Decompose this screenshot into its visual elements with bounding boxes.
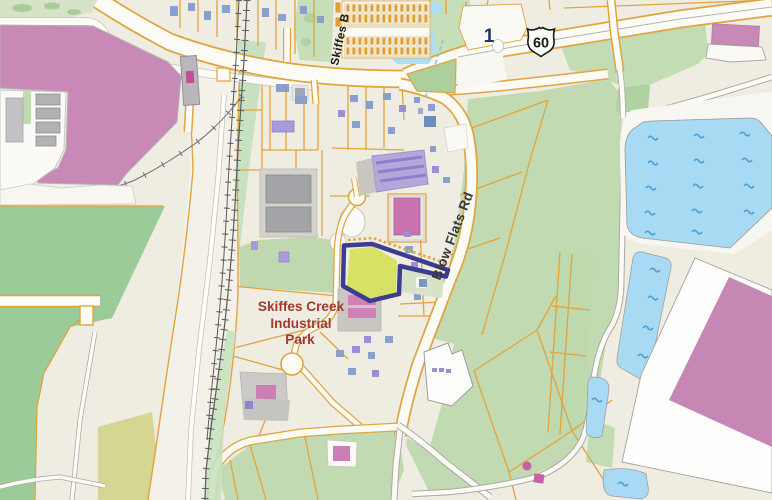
svg-text:Industrial: Industrial [270,316,331,331]
svg-text:Park: Park [285,332,315,347]
svg-text:1: 1 [484,26,495,47]
svg-text:60: 60 [533,36,549,52]
svg-text:Skiffes Creek: Skiffes Creek [258,299,345,314]
